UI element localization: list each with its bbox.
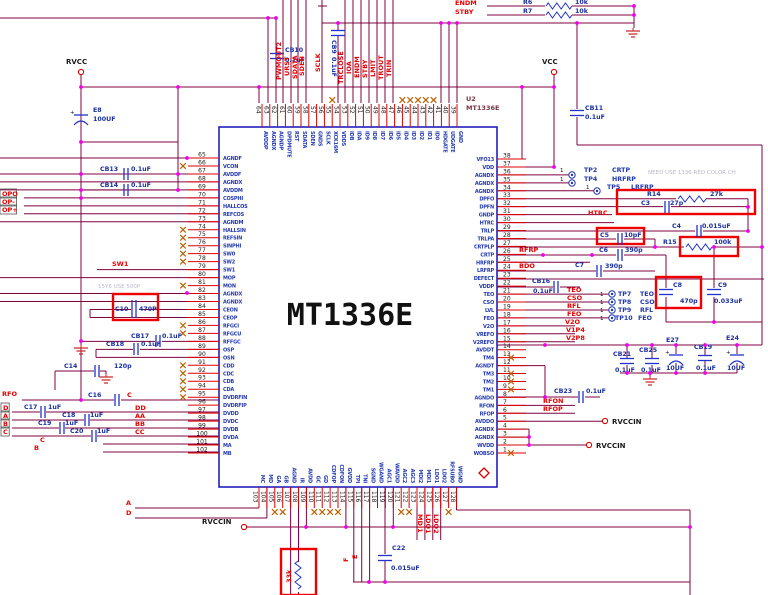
- power-terminal-label: RVCCIN: [596, 442, 626, 450]
- pin-label: CSO: [483, 300, 494, 306]
- component-value: 27k: [710, 191, 724, 198]
- pin-label: SW1: [223, 268, 236, 274]
- testpoint-name: TP10: [615, 315, 633, 322]
- junction-dot: [447, 21, 451, 25]
- net-label: STBY: [455, 8, 474, 16]
- pin-number: 82: [198, 287, 206, 294]
- pin-label: AGNDX: [475, 427, 495, 433]
- component-ref: E8: [93, 107, 102, 114]
- pin-number: 55: [325, 106, 332, 114]
- pin-label: MB: [223, 451, 232, 457]
- junction-dot: [79, 85, 83, 89]
- pin-label: SW2: [223, 260, 236, 266]
- testpoint-pin-number: 1: [586, 185, 590, 191]
- pin-label: CRTPLP: [474, 244, 495, 250]
- pin-label: VDD: [482, 165, 494, 171]
- pin-label: GA: [275, 475, 281, 483]
- pin-number: 128: [449, 491, 456, 503]
- pin-number: 114: [338, 491, 345, 503]
- component-ref: E27: [666, 337, 679, 344]
- pin-number: 122: [402, 491, 409, 503]
- ic-refdes: U2: [466, 95, 476, 103]
- testpoint-net: HRFRP: [612, 176, 636, 183]
- testpoint-name: TP7: [618, 291, 631, 298]
- testpoint-net: RFL: [640, 307, 653, 314]
- pin-number: 40: [442, 106, 449, 114]
- pin-number: 121: [394, 491, 401, 503]
- resistor-symbol: [686, 244, 712, 250]
- pin-number: 37: [503, 160, 511, 167]
- pin-number: 22: [503, 280, 511, 287]
- pin-label: LDO2: [441, 469, 447, 484]
- pin-label: HALLSIN: [223, 228, 246, 234]
- pin-number: 75: [198, 231, 206, 238]
- pin-label: DVDC: [223, 419, 239, 425]
- net-label: CSO: [567, 294, 583, 302]
- junction-dot: [176, 172, 180, 176]
- pin-label: SDEN: [309, 131, 315, 146]
- junction-dot: [746, 229, 750, 233]
- pin-number: 24: [503, 264, 511, 271]
- pin-number: 8: [503, 391, 507, 398]
- pin-number: 90: [198, 351, 206, 358]
- polarity-plus: +: [726, 350, 731, 356]
- pin-number: 3: [503, 431, 507, 438]
- component-value: 1uF: [97, 428, 110, 435]
- net-label: URST: [283, 56, 291, 76]
- pin-number: 16: [503, 327, 511, 334]
- pin-label: WGAND: [378, 462, 384, 483]
- net-label: C: [127, 391, 132, 399]
- pin-number: 112: [323, 491, 330, 503]
- testpoint-pin-number: 1: [560, 168, 564, 174]
- pin-number: 70: [198, 191, 206, 198]
- pin-number: 42: [426, 106, 433, 114]
- pin-number: 116: [354, 491, 361, 503]
- pin-number: 119: [378, 491, 385, 503]
- component-value: 0.1uF: [615, 367, 635, 374]
- pin-number: 29: [503, 224, 511, 231]
- junction-dot: [527, 435, 531, 439]
- resistor-symbol: [546, 3, 572, 9]
- net-label: PWMOUT2: [275, 42, 283, 80]
- pin-label: GB: [283, 475, 289, 483]
- pin-number: 64: [255, 106, 262, 114]
- pin-label: RST: [293, 131, 299, 142]
- pin-label: COSPHI: [223, 196, 243, 202]
- pin-number: 33: [503, 192, 511, 199]
- component-ref: CB11: [585, 105, 603, 112]
- pin-label: MDI1: [425, 469, 431, 483]
- pin-number: 20: [503, 296, 511, 303]
- net-label: RFO: [2, 390, 17, 398]
- pin-number: 89: [198, 343, 206, 350]
- junction-dot: [257, 85, 261, 89]
- pin-label: GVDD: [346, 468, 352, 484]
- junction-dot: [703, 371, 707, 375]
- junction-dot: [746, 205, 750, 209]
- pin-label: AGNDX: [475, 173, 495, 179]
- pin-label: TM4: [483, 356, 495, 362]
- testpoint-icon: [611, 317, 613, 319]
- pin-label: AVDDF: [223, 172, 241, 178]
- junction-dot: [304, 525, 308, 529]
- testpoint-pin-number: 1: [600, 316, 604, 322]
- junction-dot: [674, 371, 678, 375]
- junction-dot: [336, 21, 340, 25]
- pin-number: 103: [252, 491, 259, 503]
- pin-number: 1: [503, 447, 507, 454]
- pin-label: TRLPA: [477, 236, 494, 242]
- component-ref: C10: [115, 306, 129, 313]
- pin-number: 9: [503, 383, 507, 390]
- pin-label: DVDB: [223, 427, 239, 433]
- highlight-box-layer: [113, 190, 755, 595]
- pin-number: 60: [286, 106, 293, 114]
- junction-dot: [552, 85, 556, 89]
- pin-number: 6: [503, 407, 507, 414]
- pin-number: 5: [503, 415, 507, 422]
- pin-label: HRFRP: [476, 260, 495, 266]
- pin-label: AGC2: [401, 469, 407, 484]
- junction-dot: [79, 196, 83, 200]
- polarity-plus: +: [665, 350, 670, 356]
- pin-label: TEO: [484, 292, 494, 298]
- pin-number: 108: [291, 491, 298, 503]
- component-ref: C5: [600, 232, 609, 239]
- pin-number: 32: [503, 200, 511, 207]
- component-value: 33k: [285, 569, 293, 583]
- pin-number: 63: [262, 106, 269, 114]
- pin-number: 95: [198, 391, 206, 398]
- pin-label: LRFRP: [477, 268, 495, 274]
- pin-label: WVDD: [477, 443, 494, 449]
- junction-dot: [552, 165, 556, 169]
- junction-dot: [712, 245, 716, 249]
- pin-label: MA: [223, 443, 232, 449]
- pin-number: 113: [331, 491, 338, 503]
- pin-number: 26: [503, 248, 511, 255]
- pin-label: OSN: [223, 355, 234, 361]
- component-ref: CB21: [613, 351, 631, 358]
- component-value: 0.1uF: [162, 333, 182, 340]
- pin-label: AGNDX: [475, 435, 495, 441]
- component-ref: C4: [672, 223, 682, 230]
- net-label: V2P8: [566, 334, 585, 342]
- testpoint-net: CSO: [640, 299, 655, 306]
- component-value: 100k: [714, 239, 732, 246]
- junction-dot: [79, 172, 83, 176]
- component-ref: CB13: [100, 166, 118, 173]
- power-terminal: [551, 69, 556, 74]
- pin-number: 38: [503, 153, 511, 160]
- pin-label: AGNDX: [475, 189, 495, 195]
- junction-dot: [543, 395, 547, 399]
- testpoint-icon: [611, 301, 613, 303]
- pin-label: OSP: [223, 347, 234, 353]
- pin-number: 105: [267, 491, 274, 503]
- net-label: STBY: [361, 59, 369, 78]
- pin-label: AGNDX: [223, 292, 243, 298]
- pin-number: 73: [198, 215, 206, 222]
- net-label: LDO1: [424, 514, 432, 534]
- junction-dot: [735, 343, 739, 347]
- junction-dot: [632, 4, 636, 8]
- junction-dot: [632, 13, 636, 17]
- component-value: 0.033uF: [714, 298, 743, 305]
- pin-number: 52: [348, 106, 355, 114]
- component-value: 0.1uF: [585, 114, 605, 121]
- pin-label: AGNDX: [223, 300, 243, 306]
- testpoint-icon: [571, 174, 573, 176]
- junction-dot: [543, 343, 547, 347]
- pin-label: DPDMUTE: [285, 131, 291, 158]
- component-value: 10k: [575, 0, 589, 6]
- junction-dot: [541, 253, 545, 257]
- pin-label: FEO: [484, 316, 494, 322]
- pin-label: DVDA: [223, 435, 239, 441]
- net-label: SCLK: [314, 52, 322, 72]
- component-value: 10pF: [624, 232, 642, 239]
- component-ref: C19: [38, 420, 51, 427]
- testpoint-name: TP4: [584, 176, 598, 183]
- pin-number: 100: [196, 431, 208, 438]
- annotation-note: 15Y6 USE 500P: [98, 284, 141, 290]
- pin-number: 91: [198, 359, 206, 366]
- pin-number: 83: [198, 295, 206, 302]
- net-label: V2O: [565, 318, 581, 326]
- junction-dot: [648, 371, 652, 375]
- pin-label: AGNDP: [278, 131, 284, 151]
- pin-number: 23: [503, 272, 511, 279]
- pin-label: CDA: [223, 387, 234, 393]
- pin-number: 49: [372, 106, 379, 114]
- net-label: AA: [135, 412, 145, 420]
- component-value: 1uF: [65, 420, 78, 427]
- pin-label: AVDDO: [475, 419, 494, 425]
- junction-dot: [185, 156, 189, 160]
- pin-label: HALLCOS: [223, 204, 248, 210]
- net-label: C: [3, 428, 8, 436]
- pin-number: 78: [198, 255, 206, 262]
- pin-number: 111: [315, 491, 322, 503]
- pin-number: 2: [503, 439, 507, 446]
- polarity-plus: +: [70, 110, 75, 116]
- junction-dot: [625, 371, 629, 375]
- junction-dot: [712, 320, 716, 324]
- pin-number: 30: [503, 216, 511, 223]
- net-label: CC: [135, 428, 145, 436]
- power-terminal-label: RVCC: [66, 58, 87, 66]
- pin-label: CDB: [223, 379, 234, 385]
- pin-number: 18: [503, 311, 511, 318]
- pin-label: ID8: [371, 131, 377, 141]
- component-ref: R15: [663, 239, 677, 246]
- net-label: SDEN: [298, 56, 306, 76]
- testpoint-icon: [596, 190, 598, 192]
- pin-number: 88: [198, 335, 206, 342]
- junction-dot: [455, 21, 459, 25]
- annotation-note: NEED USE 1336 RED COLOR CH: [648, 170, 736, 176]
- pin-number: 7: [503, 399, 507, 406]
- net-label: ENDM: [455, 0, 477, 7]
- pin-label: DPFO: [479, 197, 494, 203]
- pin-number: 124: [417, 491, 424, 503]
- pin-label: RFGCU: [223, 331, 241, 337]
- pin-number: 46: [395, 106, 402, 114]
- pin-number: 67: [198, 167, 206, 174]
- pin-label: AGNDX: [270, 131, 276, 151]
- pin-label: SGND: [370, 468, 376, 483]
- component-ref: C16: [88, 392, 102, 399]
- pin-label: WGND: [457, 466, 463, 483]
- component-ref: C3: [641, 200, 650, 207]
- net-label: ENDM: [353, 56, 361, 78]
- pin-label: VDDS: [340, 131, 346, 147]
- junction-dot: [650, 343, 654, 347]
- pin-label: SW0: [223, 252, 236, 258]
- testpoint-pin-number: 1: [600, 300, 604, 306]
- testpoint-pin-number: 1: [600, 308, 604, 314]
- pin-label: CDFOP: [330, 465, 336, 484]
- pin-label: ID2: [418, 131, 424, 141]
- component-ref: CB25: [639, 347, 657, 354]
- net-label: BDO: [519, 262, 535, 270]
- pin-label: AGND: [291, 467, 297, 483]
- pin-number: 72: [198, 207, 206, 214]
- pin-label: CDC: [223, 371, 234, 377]
- pin-label: RFOP: [480, 411, 495, 417]
- net-label: TROUT: [377, 55, 385, 80]
- junction-dot: [439, 21, 443, 25]
- ic-center-label: MT1336E: [287, 298, 413, 333]
- power-terminal: [78, 69, 83, 74]
- junction-dot: [266, 16, 270, 20]
- pin-number: 15: [503, 335, 511, 342]
- component-ref: R7: [523, 8, 532, 15]
- testpoint-icon: [611, 309, 613, 311]
- junction-dot: [176, 188, 180, 192]
- pin-number: 115: [346, 491, 353, 503]
- power-terminal: [241, 524, 246, 529]
- pin-label: RFSUBO: [449, 461, 455, 483]
- net-label: RFRP: [519, 246, 538, 254]
- component-value: 470p: [680, 298, 698, 305]
- pin-number: 127: [441, 491, 448, 503]
- pin-number: 34: [503, 184, 511, 191]
- testpoint-icon: [571, 182, 573, 184]
- component-ref: C7: [575, 262, 584, 269]
- pin-label: IR: [299, 478, 305, 484]
- pin-number: 97: [198, 407, 206, 414]
- pin-number: 41: [434, 106, 441, 114]
- pin-number: 69: [198, 183, 206, 190]
- pin-number: 51: [356, 106, 363, 114]
- pin-label: ID9: [363, 131, 369, 141]
- pin-number: 25: [503, 256, 511, 263]
- pin-number: 54: [333, 106, 340, 114]
- pin-number: 28: [503, 232, 511, 239]
- pin-label: RFON: [479, 403, 494, 409]
- net-label: F: [342, 558, 350, 562]
- pin-label: DVDD: [223, 411, 239, 417]
- pin-label: TM3: [483, 372, 495, 378]
- pin-number: 102: [196, 447, 208, 454]
- junction-dot: [653, 245, 657, 249]
- pin-label: ID6: [387, 131, 393, 141]
- pin-label: MOP: [223, 276, 236, 282]
- pin-label: AVDDP: [262, 131, 268, 150]
- pin-label: AGNDT: [475, 364, 495, 370]
- net-label: C: [40, 436, 45, 444]
- junction-dot: [344, 525, 348, 529]
- junction-dot: [590, 253, 594, 257]
- pin-label: REFSIN: [223, 236, 242, 242]
- power-terminal-label: VCC: [542, 58, 558, 66]
- pin-label: REFCOS: [223, 212, 245, 218]
- pin-number: 43: [418, 106, 425, 114]
- net-label: FEO: [567, 310, 582, 318]
- pin-number: 48: [379, 106, 386, 114]
- pin-label: CRTP: [480, 252, 494, 258]
- net-label: LDO2: [432, 514, 440, 534]
- net-label: BB: [135, 420, 145, 428]
- junction-dot: [625, 343, 629, 347]
- component-value: 0.1uF: [696, 365, 716, 372]
- component-value: 390p: [605, 263, 623, 270]
- component-value: 0.1uF: [330, 57, 337, 77]
- pin-label: CDFON: [338, 464, 344, 483]
- net-label: TEO: [567, 286, 582, 294]
- pin-number: 47: [387, 106, 394, 114]
- component-ref: CB23: [554, 388, 572, 395]
- pin-label: MON: [223, 284, 236, 290]
- pin-number: 31: [503, 208, 511, 215]
- pin-label: DVDRFIP: [223, 403, 247, 409]
- net-label: MDI1: [416, 514, 424, 533]
- pin-number: 62: [270, 106, 277, 114]
- pin-label: TRLP: [481, 229, 495, 235]
- pin-label: CDD: [223, 363, 234, 369]
- schematic-svg: 65AGNDF66VCON67AVDDF68AGNDX69AVDDM70COSP…: [0, 0, 768, 595]
- power-terminal: [586, 442, 591, 447]
- schematic-canvas: 65AGNDF66VCON67AVDDF68AGNDX69AVDDM70COSP…: [0, 0, 768, 595]
- pin-number: 118: [370, 491, 377, 503]
- pin-label: GC: [314, 476, 320, 484]
- pin-label: ID5: [395, 131, 401, 141]
- component-ref: CB9: [330, 40, 337, 54]
- pin-label: WOBSO: [474, 451, 494, 457]
- net-label: OP+: [2, 206, 18, 214]
- testpoint-name: TP2: [584, 167, 597, 174]
- resistor-symbol: [546, 12, 572, 18]
- pin-label: SCLK: [324, 131, 330, 146]
- component-value: 1uF: [90, 412, 103, 419]
- pin-label: ID7: [379, 131, 385, 141]
- pin-number: 98: [198, 415, 206, 422]
- component-ref: CB19: [694, 344, 712, 351]
- component-ref: CB10: [285, 47, 304, 54]
- net-label: V1P4: [566, 326, 585, 334]
- pin-label: WAVDD: [393, 463, 399, 483]
- pin-number: 79: [198, 263, 206, 270]
- net-label: B: [34, 444, 39, 452]
- highlight-box: [617, 190, 755, 214]
- pin-number: 92: [198, 367, 206, 374]
- junction-dot: [367, 580, 371, 584]
- pin-label: AVDD: [306, 468, 312, 483]
- pin-number: 85: [198, 311, 206, 318]
